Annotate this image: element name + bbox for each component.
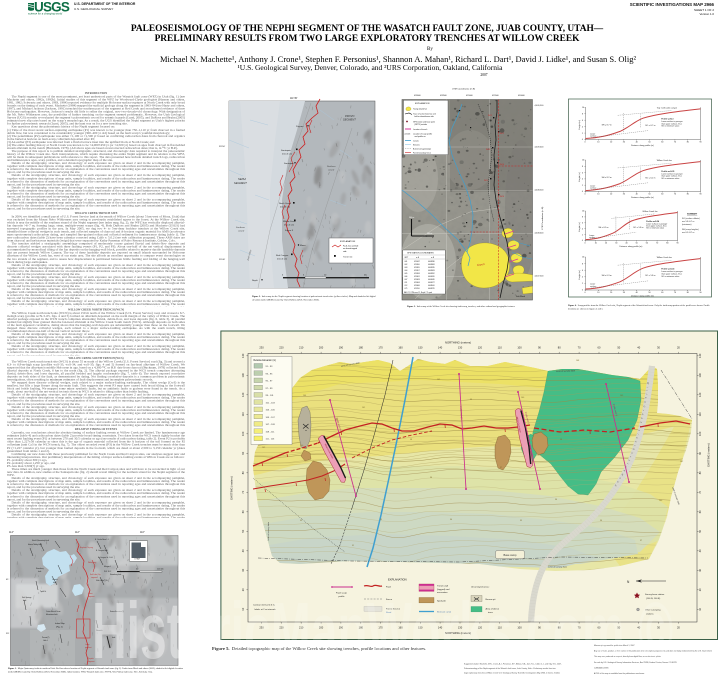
svg-text:trench site: trench site bbox=[280, 206, 291, 209]
svg-text:104: 104 bbox=[303, 395, 306, 397]
svg-text:10: 10 bbox=[595, 243, 597, 245]
svg-text:110°: 110° bbox=[140, 531, 145, 534]
svg-text:60: 60 bbox=[646, 243, 648, 245]
svg-text:102: 102 bbox=[680, 461, 683, 463]
svg-text:93: 93 bbox=[300, 520, 302, 522]
svg-text:103: 103 bbox=[620, 395, 623, 397]
svg-text:006: 006 bbox=[405, 276, 408, 278]
svg-text:Utah Lake(?) flt: Utah Lake(?) flt bbox=[96, 579, 108, 582]
svg-text:2: 2 bbox=[582, 185, 583, 187]
svg-text:trench site: trench site bbox=[282, 153, 293, 156]
svg-text:SO is minimum value: SO is minimum value bbox=[661, 126, 679, 128]
svg-text:0: 0 bbox=[585, 142, 586, 144]
svg-text:429500: 429500 bbox=[492, 95, 500, 97]
svg-text:SO = 5.8 m: SO = 5.8 m bbox=[645, 275, 656, 277]
svg-text:SO = 5.8 m: SO = 5.8 m bbox=[633, 227, 644, 229]
svg-text:80: 80 bbox=[687, 142, 689, 144]
svg-text:90: 90 bbox=[700, 142, 702, 144]
svg-text:SO = 6.7 m: SO = 6.7 m bbox=[645, 125, 656, 127]
svg-text:0: 0 bbox=[585, 194, 586, 196]
svg-text:side: side bbox=[343, 251, 346, 253]
svg-text:Levan: Levan bbox=[85, 644, 90, 646]
svg-text:97: 97 bbox=[640, 540, 642, 542]
svg-text:60: 60 bbox=[661, 142, 663, 144]
svg-text:GPS STATION COORDINATES: GPS STATION COORDINATES bbox=[407, 252, 434, 255]
svg-text:SO = 6.2 m: SO = 6.2 m bbox=[645, 177, 656, 179]
svg-text:Hansel Valley fault: Hansel Valley fault bbox=[28, 543, 42, 546]
svg-text:4,408,000: 4,408,000 bbox=[535, 233, 545, 235]
svg-text:8: 8 bbox=[582, 113, 583, 115]
svg-text:surface: surface bbox=[589, 236, 595, 239]
svg-text:strand: strand bbox=[238, 230, 245, 233]
svg-text:EXPLANATION: EXPLANATION bbox=[340, 240, 356, 243]
svg-text:100: 100 bbox=[517, 346, 522, 350]
svg-text:4408335: 4408335 bbox=[428, 267, 435, 269]
svg-text:002: 002 bbox=[405, 264, 408, 266]
svg-text:Distance along profile (m): Distance along profile (m) bbox=[631, 196, 654, 199]
svg-text:Height (m): Height (m) bbox=[578, 120, 581, 130]
svg-text:120: 120 bbox=[241, 392, 245, 397]
svg-text:101 - 103: 101 - 103 bbox=[266, 402, 276, 404]
svg-text:Limit of survey data: Limit of survey data bbox=[267, 521, 270, 541]
svg-text:40: 40 bbox=[636, 292, 638, 294]
svg-text:Fish Springs: Fish Springs bbox=[22, 596, 32, 599]
svg-text:429658: 429658 bbox=[414, 273, 420, 275]
svg-text:4: 4 bbox=[582, 126, 583, 128]
svg-text:SEGMENT: SEGMENT bbox=[234, 181, 247, 185]
svg-text:SO (surface offsets): SO (surface offsets) bbox=[682, 217, 700, 220]
svg-text:40: 40 bbox=[636, 142, 638, 144]
svg-text:Buried corrugated pipe: Buried corrugated pipe bbox=[413, 148, 431, 151]
svg-text:109 - 111: 109 - 111 bbox=[266, 431, 276, 433]
svg-text:Figure 3: Figure 3 bbox=[285, 229, 294, 232]
svg-text:100: 100 bbox=[241, 431, 245, 436]
svg-text:E. Cache Bear L. f.: E. Cache Bear L. f. bbox=[95, 538, 110, 541]
svg-text:science for a changing world: science for a changing world bbox=[28, 12, 63, 16]
svg-text:SH (scarp heights): SH (scarp heights) bbox=[682, 228, 699, 231]
svg-text:500 m: 500 m bbox=[409, 217, 415, 219]
svg-text:Distance along profile (m): Distance along profile (m) bbox=[620, 245, 643, 248]
svg-text:108: 108 bbox=[576, 360, 579, 362]
svg-text:wcS-33: wcS-33 bbox=[405, 134, 411, 136]
svg-text:50: 50 bbox=[648, 292, 650, 294]
svg-text:140: 140 bbox=[241, 353, 245, 358]
svg-text:20: 20 bbox=[610, 292, 612, 294]
svg-text:90: 90 bbox=[700, 194, 702, 196]
svg-text:8: 8 bbox=[582, 217, 583, 219]
svg-text:111°45': 111°45' bbox=[290, 98, 298, 100]
svg-text:130: 130 bbox=[458, 346, 463, 350]
svg-text:60: 60 bbox=[661, 194, 663, 196]
svg-text:Limit of survey data: Limit of survey data bbox=[548, 566, 568, 569]
svg-text:(WP75) outside: (WP75) outside bbox=[415, 123, 427, 126]
svg-text:96: 96 bbox=[600, 520, 602, 522]
svg-text:110: 110 bbox=[498, 346, 503, 350]
svg-text:120: 120 bbox=[698, 392, 702, 397]
svg-text:30: 30 bbox=[623, 194, 625, 196]
svg-text:0: 0 bbox=[585, 292, 586, 294]
svg-text:Mona: Mona bbox=[300, 245, 306, 247]
svg-text:segment: segment bbox=[91, 576, 98, 579]
svg-text:Height (m): Height (m) bbox=[578, 222, 581, 232]
svg-text:4408363: 4408363 bbox=[428, 270, 435, 272]
svg-text:007: 007 bbox=[405, 279, 408, 281]
svg-text:Santaquin: Santaquin bbox=[281, 149, 292, 152]
svg-text:10: 10 bbox=[582, 211, 584, 213]
svg-text:97: 97 bbox=[500, 467, 502, 469]
svg-text:94: 94 bbox=[450, 519, 452, 521]
svg-text:200: 200 bbox=[319, 346, 324, 350]
svg-text:SEGMENT: SEGMENT bbox=[343, 118, 356, 122]
svg-text:Location of scarp profile: Location of scarp profile bbox=[413, 133, 432, 136]
svg-text:WPT: WPT bbox=[405, 257, 409, 259]
svg-text:150: 150 bbox=[418, 346, 423, 350]
svg-text:fault: fault bbox=[23, 599, 27, 602]
svg-text:70: 70 bbox=[674, 142, 676, 144]
svg-text:Forest boundary fence: Forest boundary fence bbox=[413, 152, 431, 155]
svg-text:PROVO: PROVO bbox=[345, 114, 354, 118]
svg-text:UTM Coordinates (m N): UTM Coordinates (m N) bbox=[541, 207, 544, 230]
svg-text:SO is minimum value: SO is minimum value bbox=[661, 276, 679, 278]
svg-text:429647: 429647 bbox=[414, 261, 420, 263]
svg-text:EASTING (meters): EASTING (meters) bbox=[707, 443, 711, 467]
svg-text:WC1: WC1 bbox=[488, 115, 492, 117]
svg-text:4408286: 4408286 bbox=[428, 261, 435, 263]
svg-text:430000: 430000 bbox=[518, 95, 526, 97]
svg-text:2: 2 bbox=[582, 234, 583, 236]
svg-text:EXPLANATION: EXPLANATION bbox=[415, 102, 430, 105]
svg-text:30: 30 bbox=[615, 243, 617, 245]
svg-text:segment: segment bbox=[85, 646, 92, 649]
svg-text:Young alluvial fan: Young alluvial fan bbox=[413, 109, 427, 111]
svg-text:70: 70 bbox=[674, 292, 676, 294]
svg-text:4408229: 4408229 bbox=[428, 288, 435, 290]
svg-text:Little f.: Little f. bbox=[43, 639, 49, 642]
svg-text:99: 99 bbox=[470, 399, 472, 401]
svg-text:WC3: WC3 bbox=[486, 149, 490, 151]
svg-text:km: km bbox=[364, 275, 367, 277]
svg-text:4: 4 bbox=[582, 179, 583, 181]
svg-text:6: 6 bbox=[582, 270, 583, 272]
svg-text:180: 180 bbox=[359, 346, 364, 350]
svg-text:429666: 429666 bbox=[414, 285, 420, 287]
svg-text:2: 2 bbox=[582, 283, 583, 285]
svg-text:UTAH: UTAH bbox=[134, 558, 140, 561]
svg-text:4,408,500: 4,408,500 bbox=[535, 190, 545, 192]
svg-text:428500: 428500 bbox=[440, 95, 448, 97]
svg-text:fault: fault bbox=[38, 570, 42, 573]
svg-text:170: 170 bbox=[378, 346, 383, 350]
svg-text:10: 10 bbox=[582, 107, 584, 109]
svg-text:95: 95 bbox=[520, 520, 522, 522]
svg-text:90: 90 bbox=[700, 292, 702, 294]
svg-text:Mountains fault: Mountains fault bbox=[46, 613, 58, 616]
svg-text:20: 20 bbox=[610, 142, 612, 144]
svg-text:70: 70 bbox=[674, 194, 676, 196]
svg-text:4,409,000: 4,409,000 bbox=[535, 147, 545, 149]
svg-text:SH = 8.2 m: SH = 8.2 m bbox=[602, 177, 612, 179]
svg-text:90: 90 bbox=[677, 243, 679, 245]
svg-text:Weber seg: Weber seg bbox=[88, 561, 96, 564]
svg-text:120: 120 bbox=[478, 346, 483, 350]
svg-text:429657: 429657 bbox=[414, 270, 420, 272]
svg-text:North Creek: North Creek bbox=[279, 202, 292, 205]
svg-text:91 - 93: 91 - 93 bbox=[266, 366, 274, 368]
svg-text:trench site: trench site bbox=[277, 258, 288, 261]
svg-text:trench site: trench site bbox=[284, 224, 295, 227]
svg-text:10: 10 bbox=[582, 257, 584, 259]
svg-text:Topliff h.: Topliff h. bbox=[40, 591, 47, 593]
svg-text:101: 101 bbox=[362, 407, 365, 409]
svg-text:004: 004 bbox=[405, 270, 408, 272]
svg-text:Height (m): Height (m) bbox=[578, 172, 581, 182]
svg-text:429664: 429664 bbox=[414, 282, 420, 284]
svg-text:0: 0 bbox=[585, 243, 586, 245]
svg-text:NORTHING (meters): NORTHING (meters) bbox=[445, 340, 471, 344]
svg-text:10: 10 bbox=[582, 160, 584, 162]
svg-text:Payson: Payson bbox=[296, 126, 304, 128]
svg-text:0: 0 bbox=[582, 240, 583, 242]
svg-text:WC2: WC2 bbox=[500, 133, 504, 135]
svg-text:NEPHI: NEPHI bbox=[238, 177, 246, 181]
svg-text:6: 6 bbox=[582, 172, 583, 174]
svg-text:140: 140 bbox=[438, 346, 443, 350]
svg-text:91: 91 bbox=[352, 545, 354, 547]
svg-text:40: 40 bbox=[625, 243, 627, 245]
svg-text:50: 50 bbox=[648, 142, 650, 144]
svg-text:429700: 429700 bbox=[414, 288, 420, 290]
svg-text:429661: 429661 bbox=[414, 276, 420, 278]
svg-text:EASTING (meters): EASTING (meters) bbox=[230, 476, 234, 500]
svg-text:Willow Creek fan: Willow Creek fan bbox=[657, 257, 672, 259]
svg-text:SH = 6.3 m: SH = 6.3 m bbox=[602, 275, 612, 277]
svg-text:003: 003 bbox=[405, 267, 408, 269]
svg-text:EXPLANATION: EXPLANATION bbox=[388, 578, 407, 582]
svg-text:011: 011 bbox=[405, 282, 408, 284]
svg-text:are 5.8–6.7 m: are 5.8–6.7 m bbox=[682, 221, 695, 223]
svg-text:114°: 114° bbox=[9, 531, 14, 534]
svg-text:10: 10 bbox=[597, 142, 599, 144]
svg-text:102: 102 bbox=[335, 419, 338, 421]
svg-text:surface: surface bbox=[590, 187, 596, 190]
svg-text:96: 96 bbox=[555, 499, 557, 501]
svg-text:E. Canyon fault: E. Canyon fault bbox=[96, 549, 108, 552]
svg-text:20: 20 bbox=[605, 243, 607, 245]
svg-text:4408392: 4408392 bbox=[428, 273, 435, 275]
svg-text:Trench site: Trench site bbox=[343, 256, 352, 259]
svg-text:6: 6 bbox=[582, 120, 583, 122]
svg-text:Willow Creek fan: Willow Creek fan bbox=[657, 160, 672, 162]
svg-text:Location of trench: Location of trench bbox=[413, 128, 427, 131]
svg-text:39°: 39° bbox=[6, 633, 9, 635]
svg-text:4,409,500: 4,409,500 bbox=[535, 105, 545, 107]
svg-text:98: 98 bbox=[560, 439, 562, 441]
svg-text:(Fig. 2): (Fig. 2) bbox=[56, 627, 63, 629]
svg-text:surface: surface bbox=[590, 285, 596, 288]
svg-text:012: 012 bbox=[405, 285, 408, 287]
svg-text:4408506: 4408506 bbox=[428, 285, 435, 287]
svg-text:80: 80 bbox=[687, 292, 689, 294]
svg-text:E. Canyon Gr. Crk f.: E. Canyon Gr. Crk f. bbox=[98, 556, 114, 559]
svg-text:SH = 6.9 m: SH = 6.9 m bbox=[598, 227, 608, 229]
svg-text:103 - 105: 103 - 105 bbox=[266, 410, 276, 412]
svg-text:Northern: Northern bbox=[327, 165, 336, 168]
svg-text:111 - 113: 111 - 113 bbox=[266, 439, 276, 441]
svg-text:4408308: 4408308 bbox=[428, 264, 435, 266]
svg-text:60: 60 bbox=[661, 292, 663, 294]
svg-text:SH = 8.7 m: SH = 8.7 m bbox=[602, 125, 612, 127]
svg-text:Canals: Canals bbox=[413, 141, 419, 143]
svg-text:40: 40 bbox=[636, 194, 638, 196]
svg-text:Streams: Streams bbox=[413, 144, 420, 147]
svg-text:fault: fault bbox=[53, 581, 57, 584]
svg-text:97 - 99: 97 - 99 bbox=[266, 388, 274, 390]
svg-text:95: 95 bbox=[380, 519, 382, 521]
svg-text:Index Map: Index Map bbox=[55, 623, 66, 625]
svg-text:UTM Coordinates (m E): UTM Coordinates (m E) bbox=[452, 88, 475, 91]
svg-text:10: 10 bbox=[597, 292, 599, 294]
svg-text:Distance along profile (m): Distance along profile (m) bbox=[631, 294, 654, 297]
svg-text:(minimum): (minimum) bbox=[682, 224, 692, 226]
svg-text:96: 96 bbox=[430, 477, 432, 479]
svg-text:Fault: Fault bbox=[386, 586, 391, 589]
svg-text:98: 98 bbox=[410, 439, 412, 441]
svg-text:140: 140 bbox=[698, 353, 702, 358]
svg-text:Pavant(?): Pavant(?) bbox=[42, 636, 50, 639]
svg-text:500 m: 500 m bbox=[427, 233, 433, 235]
svg-text:39°50': 39°50' bbox=[219, 146, 226, 148]
svg-text:strand: strand bbox=[328, 169, 335, 172]
svg-text:SUMMARY: SUMMARY bbox=[687, 213, 698, 216]
svg-text:80: 80 bbox=[687, 194, 689, 196]
svg-text:Base camp: Base camp bbox=[504, 553, 518, 557]
svg-text:6: 6 bbox=[582, 223, 583, 225]
svg-text:130: 130 bbox=[241, 373, 245, 378]
svg-text:20: 20 bbox=[610, 194, 612, 196]
svg-text:100: 100 bbox=[698, 431, 702, 436]
svg-text:39°40': 39°40' bbox=[219, 259, 226, 261]
svg-text:100: 100 bbox=[521, 397, 524, 399]
svg-text:Oquirrh: Oquirrh bbox=[52, 578, 58, 581]
svg-text:110: 110 bbox=[241, 412, 245, 417]
svg-text:2: 2 bbox=[582, 133, 583, 135]
svg-text:107 - 109: 107 - 109 bbox=[266, 424, 276, 426]
svg-text:4: 4 bbox=[582, 277, 583, 279]
svg-text:110: 110 bbox=[698, 412, 702, 417]
svg-text:Relative Elevation (m): Relative Elevation (m) bbox=[254, 359, 277, 362]
svg-text:Morgan f.: Morgan f. bbox=[104, 565, 112, 568]
svg-text:Trace of active fault, bar and: Trace of active fault, bar and bbox=[413, 113, 436, 116]
svg-text:Profile wcS-33: Profile wcS-33 bbox=[661, 269, 674, 271]
svg-text:surface: surface bbox=[590, 135, 596, 138]
svg-text:8: 8 bbox=[582, 166, 583, 168]
svg-text:005: 005 bbox=[405, 273, 408, 275]
svg-text:ball on downthrown side: ball on downthrown side bbox=[415, 115, 434, 118]
svg-text:0: 0 bbox=[582, 290, 583, 292]
svg-text:428000: 428000 bbox=[414, 95, 422, 97]
svg-text:100: 100 bbox=[659, 500, 662, 502]
svg-text:4408477: 4408477 bbox=[428, 282, 435, 284]
svg-text:8: 8 bbox=[582, 263, 583, 265]
svg-text:Trench wall: Trench wall bbox=[437, 585, 449, 588]
svg-text:001: 001 bbox=[405, 261, 408, 263]
svg-text:are 6.3–8.7 m: are 6.3–8.7 m bbox=[682, 232, 695, 234]
svg-text:80: 80 bbox=[666, 243, 668, 245]
svg-text:SO is minimum value: SO is minimum value bbox=[646, 228, 664, 230]
svg-text:100 km: 100 km bbox=[157, 569, 164, 571]
svg-text:4408420: 4408420 bbox=[428, 276, 435, 278]
svg-text:95 - 97: 95 - 97 bbox=[266, 381, 274, 383]
svg-text:30: 30 bbox=[623, 142, 625, 144]
svg-text:50: 50 bbox=[636, 243, 638, 245]
svg-text:Willow Creek fan: Willow Creek fan bbox=[643, 211, 658, 213]
svg-text:Southern: Southern bbox=[236, 226, 246, 229]
svg-text:100: 100 bbox=[300, 445, 303, 447]
svg-text:WC4: WC4 bbox=[500, 164, 504, 166]
svg-text:Red Canyon: Red Canyon bbox=[276, 255, 289, 257]
svg-text:220: 220 bbox=[279, 346, 284, 350]
svg-text:Salt Lake City: Salt Lake City bbox=[90, 573, 101, 576]
svg-text:105: 105 bbox=[437, 379, 440, 381]
svg-text:Distance along profile (m): Distance along profile (m) bbox=[631, 144, 654, 147]
svg-text:30: 30 bbox=[623, 292, 625, 294]
svg-text:41°: 41° bbox=[6, 579, 9, 581]
svg-text:429000: 429000 bbox=[466, 95, 474, 97]
svg-text:190: 190 bbox=[339, 346, 344, 350]
svg-text:Stansbury: Stansbury bbox=[36, 567, 44, 570]
svg-text:99 - 101: 99 - 101 bbox=[266, 395, 275, 397]
svg-text:70: 70 bbox=[656, 243, 658, 245]
svg-text:Top: north-side canyon: Top: north-side canyon bbox=[657, 106, 677, 109]
svg-text:Crater Bench Drum: Crater Bench Drum bbox=[46, 610, 61, 613]
svg-text:50: 50 bbox=[648, 194, 650, 196]
svg-text:230: 230 bbox=[259, 346, 264, 350]
svg-text:0: 0 bbox=[582, 191, 583, 193]
svg-text:4: 4 bbox=[582, 228, 583, 230]
svg-text:429663: 429663 bbox=[414, 279, 420, 281]
svg-text:105 - 107: 105 - 107 bbox=[266, 417, 276, 419]
svg-text:Brigham City seg: Brigham City seg bbox=[80, 546, 93, 549]
svg-text:102: 102 bbox=[262, 447, 265, 449]
svg-text:075: 075 bbox=[405, 288, 408, 290]
svg-text:W.V. SLC: W.V. SLC bbox=[104, 571, 112, 573]
svg-text:GPS station and base point: GPS station and base point bbox=[413, 121, 435, 124]
svg-text:Height (m): Height (m) bbox=[578, 270, 581, 280]
svg-text:Provo: Provo bbox=[88, 592, 92, 595]
svg-text:130: 130 bbox=[698, 373, 702, 378]
svg-text:429650: 429650 bbox=[414, 264, 420, 266]
svg-text:SO is minimum value: SO is minimum value bbox=[661, 178, 679, 180]
svg-text:10: 10 bbox=[597, 194, 599, 196]
svg-text:North Promontory fault: North Promontory fault bbox=[32, 539, 50, 542]
svg-text:WC6: WC6 bbox=[500, 196, 504, 198]
svg-text:on downdropped: on downdropped bbox=[343, 247, 357, 250]
svg-text:Nephi: Nephi bbox=[252, 280, 258, 282]
svg-text:93 - 95: 93 - 95 bbox=[266, 373, 274, 375]
svg-text:and profile no.: and profile no. bbox=[415, 136, 427, 138]
svg-text:112°: 112° bbox=[75, 531, 80, 534]
svg-text:WC5: WC5 bbox=[484, 180, 488, 182]
svg-text:210: 210 bbox=[299, 346, 304, 350]
svg-text:429655: 429655 bbox=[414, 267, 420, 269]
svg-text:160: 160 bbox=[398, 346, 403, 350]
svg-text:Fault, bar and ball: Fault, bar and ball bbox=[343, 245, 359, 248]
svg-text:4408449: 4408449 bbox=[428, 279, 435, 281]
svg-text:Unsurveyed areas:: Unsurveyed areas: bbox=[471, 586, 490, 589]
svg-text:4,407,500: 4,407,500 bbox=[535, 276, 545, 278]
svg-text:Salt Wash: Salt Wash bbox=[516, 295, 525, 298]
svg-text:Santaquin: Santaquin bbox=[284, 162, 295, 165]
